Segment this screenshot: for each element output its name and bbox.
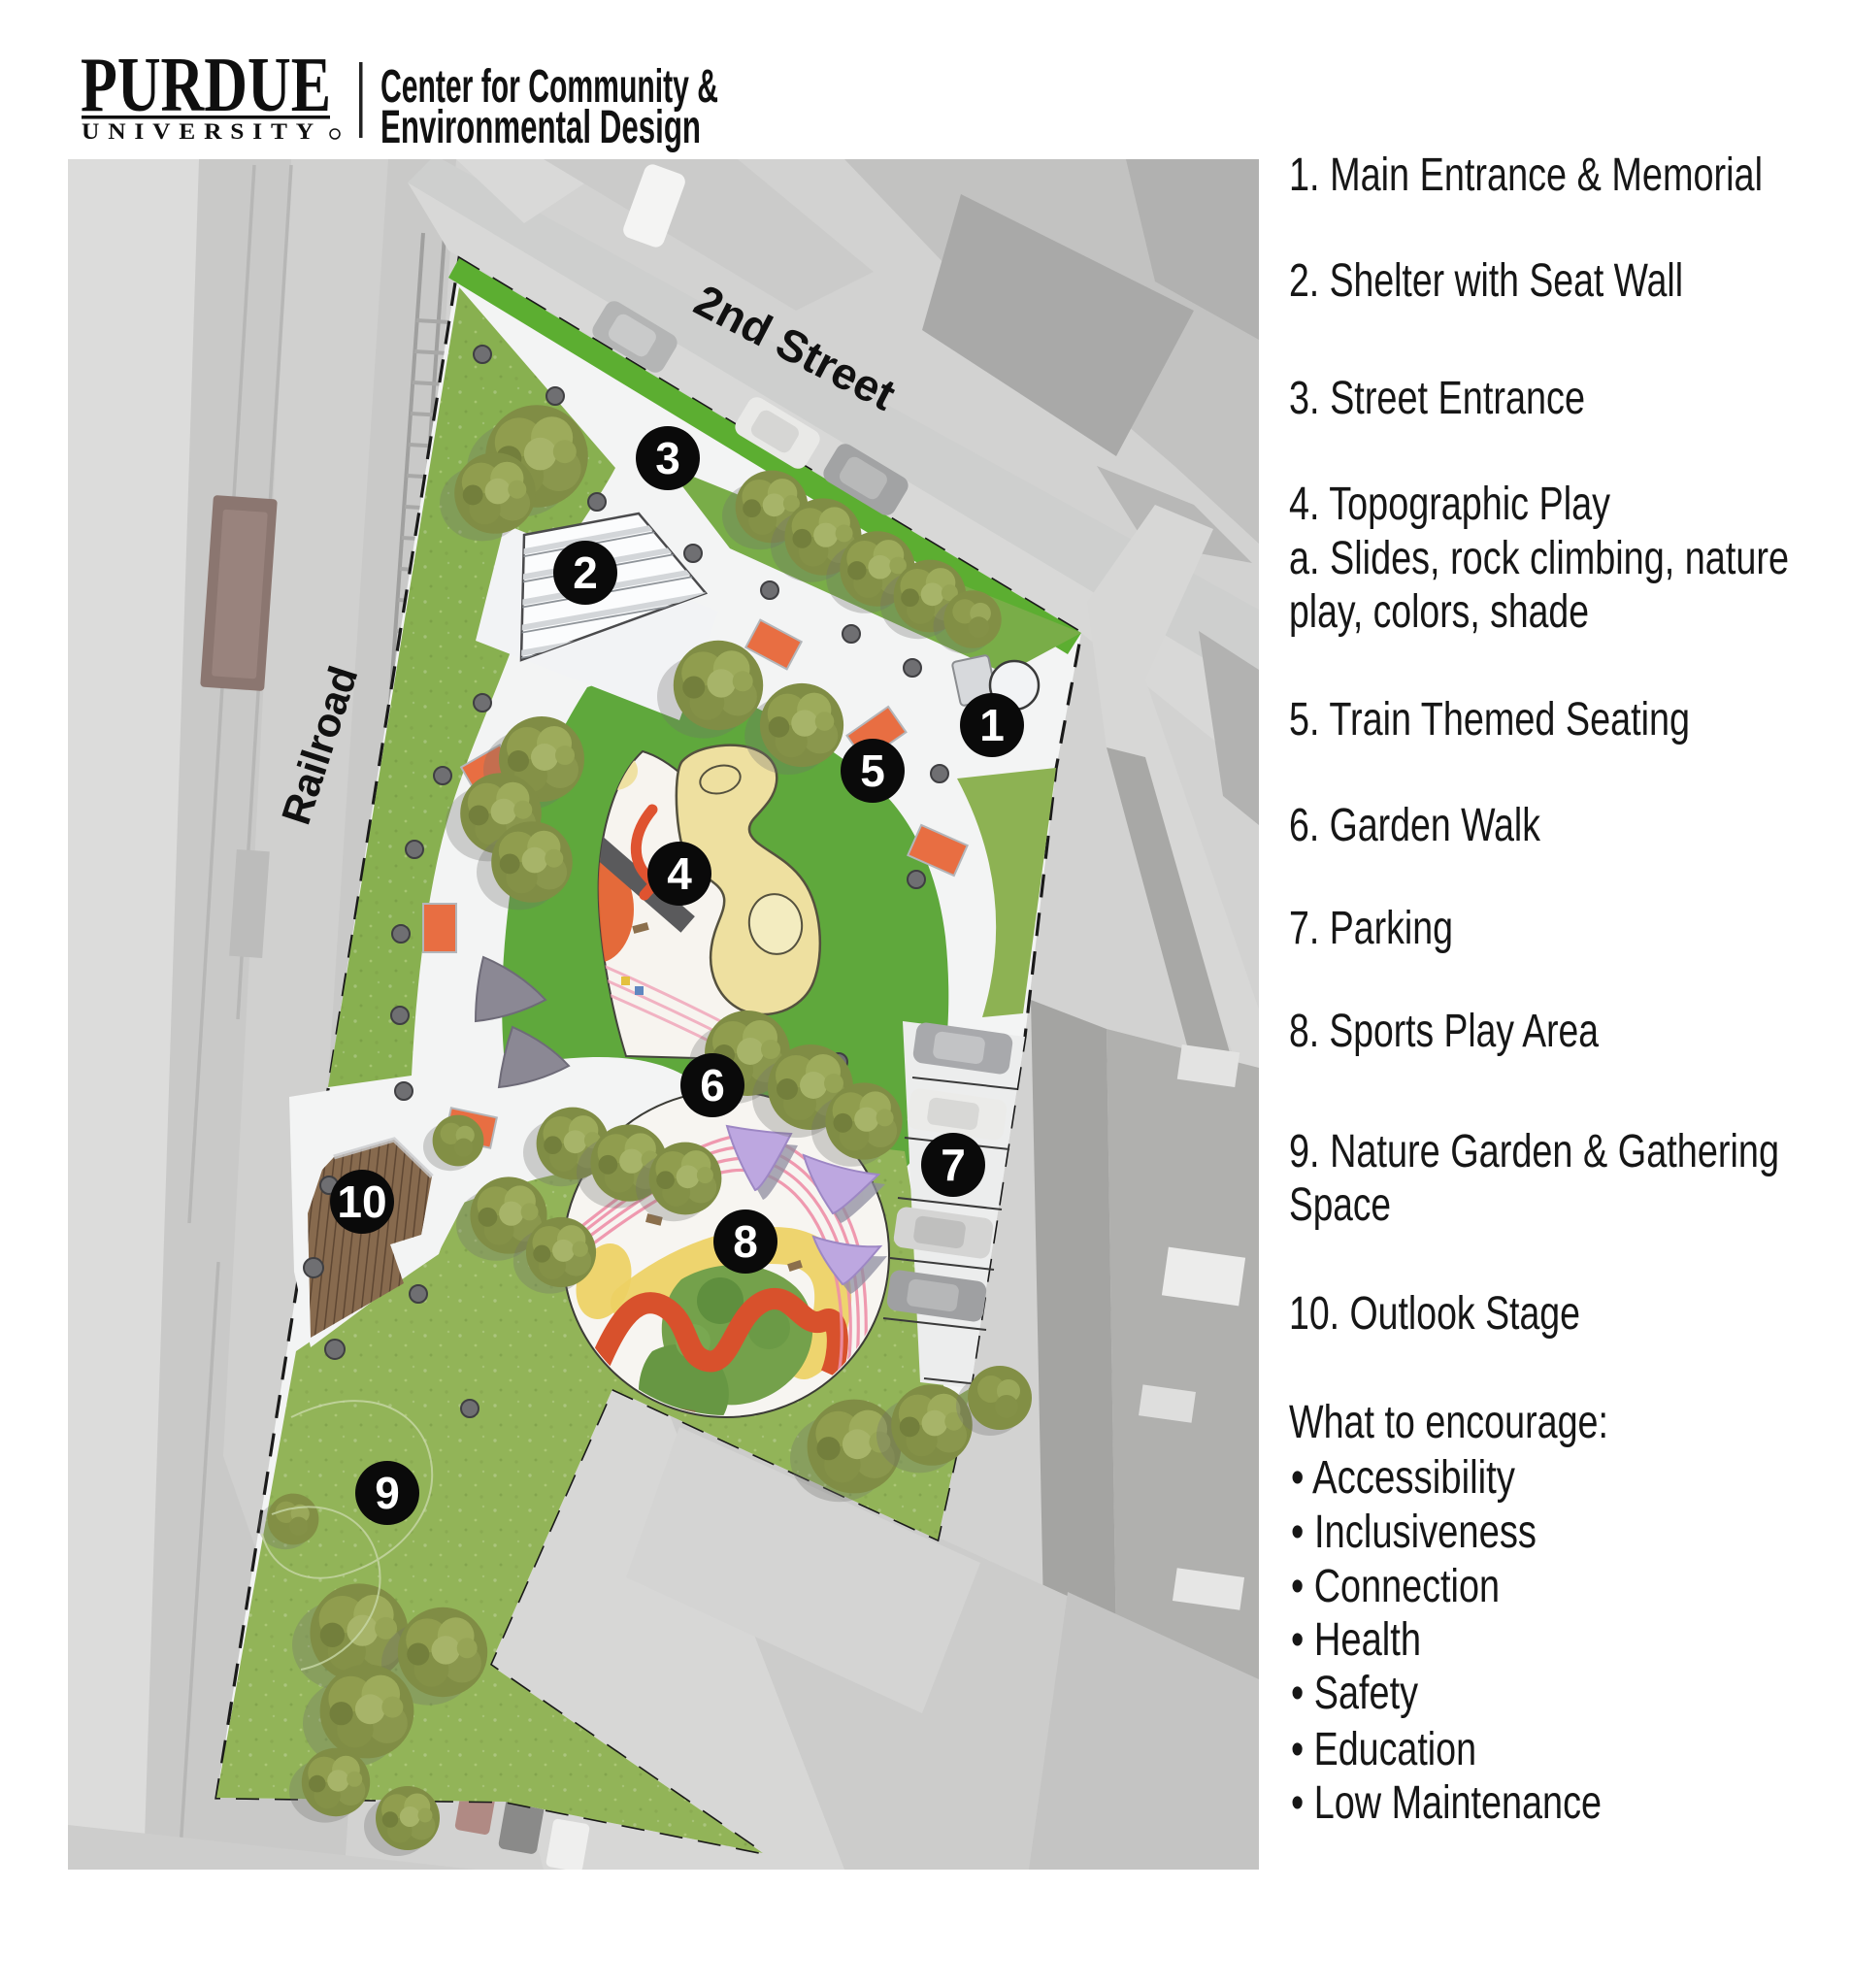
svg-text:9: 9 bbox=[375, 1468, 400, 1518]
svg-text:• Education: • Education bbox=[1291, 1724, 1476, 1775]
svg-text:7: 7 bbox=[941, 1140, 966, 1190]
svg-text:a. Slides, rock climbing, natu: a. Slides, rock climbing, nature bbox=[1289, 533, 1789, 584]
svg-text:6. Garden Walk: 6. Garden Walk bbox=[1289, 800, 1541, 851]
svg-text:• Connection: • Connection bbox=[1291, 1561, 1500, 1612]
svg-text:play, colors, shade: play, colors, shade bbox=[1289, 586, 1589, 638]
svg-text:• Safety: • Safety bbox=[1291, 1668, 1418, 1719]
svg-text:2: 2 bbox=[573, 547, 598, 598]
svg-text:4. Topographic Play: 4. Topographic Play bbox=[1289, 479, 1610, 530]
svg-text:1: 1 bbox=[979, 700, 1005, 750]
svg-text:4: 4 bbox=[667, 848, 692, 899]
svg-text:Environmental Design: Environmental Design bbox=[380, 102, 701, 153]
svg-text:What to encourage:: What to encourage: bbox=[1289, 1397, 1608, 1448]
svg-text:9. Nature Garden & Gathering: 9. Nature Garden & Gathering bbox=[1289, 1126, 1779, 1177]
svg-text:• Inclusiveness: • Inclusiveness bbox=[1291, 1507, 1537, 1558]
svg-text:10. Outlook Stage: 10. Outlook Stage bbox=[1289, 1288, 1580, 1340]
svg-text:2. Shelter with Seat Wall: 2. Shelter with Seat Wall bbox=[1289, 255, 1683, 307]
svg-text:8. Sports Play Area: 8. Sports Play Area bbox=[1289, 1006, 1599, 1057]
svg-text:10: 10 bbox=[337, 1176, 386, 1227]
svg-text:3: 3 bbox=[655, 433, 680, 483]
svg-text:8: 8 bbox=[733, 1216, 758, 1267]
svg-text:1. Main Entrance & Memorial: 1. Main Entrance & Memorial bbox=[1289, 149, 1763, 201]
svg-text:3. Street Entrance: 3. Street Entrance bbox=[1289, 373, 1585, 424]
svg-text:• Low Maintenance: • Low Maintenance bbox=[1291, 1777, 1602, 1829]
svg-text:5: 5 bbox=[860, 745, 885, 796]
svg-text:6: 6 bbox=[700, 1060, 725, 1110]
svg-text:• Health: • Health bbox=[1291, 1614, 1421, 1666]
svg-text:UNIVERSITY: UNIVERSITY bbox=[82, 119, 322, 144]
svg-text:PURDUE: PURDUE bbox=[81, 43, 331, 128]
svg-text:7. Parking: 7. Parking bbox=[1289, 903, 1453, 954]
svg-text:5. Train Themed Seating: 5. Train Themed Seating bbox=[1289, 694, 1690, 745]
svg-text:Space: Space bbox=[1289, 1179, 1391, 1231]
svg-text:• Accessibility: • Accessibility bbox=[1291, 1452, 1515, 1504]
